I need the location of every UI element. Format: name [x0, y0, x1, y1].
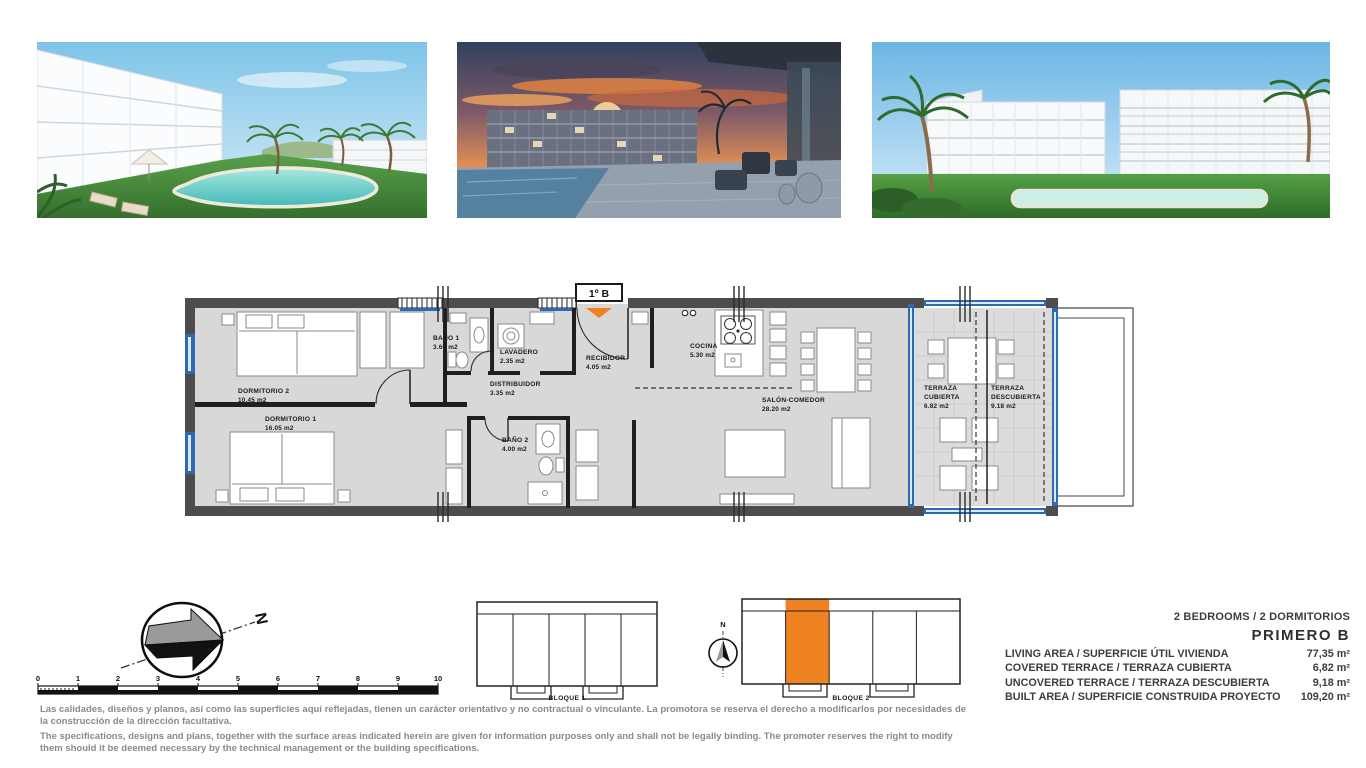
room-label-terraza-descubierta: TERRAZA	[991, 385, 1024, 392]
photo-pool-garden	[37, 42, 427, 218]
room-label-lavadero: LAVADERO	[500, 349, 538, 356]
room-area-salon-comedor: 28.20 m2	[762, 406, 791, 413]
summary-panel: 2 BEDROOMS / 2 DORMITORIOS PRIMERO B LIV…	[1005, 611, 1350, 704]
floor-plan-drawing: 1º B DORMITORIO 2 10.45 m2 DORMITORIO 1 …	[180, 282, 1140, 522]
room-label-terraza-cubierta: TERRAZA	[924, 385, 957, 392]
summary-row-uncovered-terrace: UNCOVERED TERRACE / TERRAZA DESCUBIERTA …	[1005, 676, 1350, 690]
summary-label: LIVING AREA / SUPERFICIE ÚTIL VIVIENDA	[1005, 647, 1228, 661]
room-area-bano-2: 4.00 m2	[502, 446, 527, 453]
room-label-cocina: COCINA	[690, 343, 718, 350]
photo-pool-garden-image	[37, 42, 427, 218]
compass-north-label: N	[251, 611, 270, 626]
svg-text:7: 7	[316, 674, 320, 683]
room-area-dormitorio-2: 10.45 m2	[238, 397, 267, 404]
svg-text:3: 3	[156, 674, 160, 683]
highlighted-unit	[786, 599, 830, 684]
room-area-terraza-cubierta: 6.82 m2	[924, 403, 949, 410]
summary-label: UNCOVERED TERRACE / TERRAZA DESCUBIERTA	[1005, 676, 1270, 690]
room-area-bano-1: 3.60 m2	[433, 344, 458, 351]
bloque-2-label: BLOQUE 2	[832, 695, 869, 702]
brochure-page: 1º B DORMITORIO 2 10.45 m2 DORMITORIO 1 …	[0, 0, 1366, 768]
room-label-bano-2: BAÑO 2	[502, 435, 528, 444]
photo-building-lawn-image	[872, 42, 1330, 218]
scale-bar: 0 1 2 3 4 5 6 7 8 9 10	[30, 672, 450, 700]
photo-sunset-terrace	[457, 42, 841, 218]
room-area-dormitorio-1: 16.05 m2	[265, 425, 294, 432]
disclaimer-english: The specifications, designs and plans, t…	[40, 731, 970, 756]
room-area-lavadero: 2.35 m2	[500, 358, 525, 365]
summary-label: COVERED TERRACE / TERRAZA CUBIERTA	[1005, 661, 1232, 675]
room-label-dormitorio-2: DORMITORIO 2	[238, 388, 289, 395]
block-compass-north-label: N	[720, 620, 725, 629]
block-compass-icon: N	[709, 620, 737, 677]
summary-row-living-area: LIVING AREA / SUPERFICIE ÚTIL VIVIENDA 7…	[1005, 647, 1350, 661]
summary-row-built-area: BUILT AREA / SUPERFICIE CONSTRUIDA PROYE…	[1005, 690, 1350, 704]
svg-text:DESCUBIERTA: DESCUBIERTA	[991, 394, 1041, 401]
block-key-plans-drawing: BLOQUE 1 N BLOQUE 2	[470, 596, 970, 704]
compass: N	[105, 596, 280, 684]
disclaimer-spanish: Las calidades, diseños y planos, así com…	[40, 704, 970, 729]
scale-bar-drawing: 0 1 2 3 4 5 6 7 8 9 10	[30, 672, 450, 700]
svg-text:1: 1	[76, 674, 80, 683]
room-label-distribuidor: DISTRIBUIDOR	[490, 381, 541, 388]
unit-name: PRIMERO B	[1005, 627, 1350, 644]
room-label-recibidor: RECIBIDOR	[586, 355, 625, 362]
compass-icon: N	[105, 596, 280, 684]
svg-text:CUBIERTA: CUBIERTA	[924, 394, 960, 401]
photo-building-lawn	[872, 42, 1330, 218]
svg-text:6: 6	[276, 674, 280, 683]
summary-value: 6,82 m²	[1303, 661, 1350, 675]
bloque-2-plan	[742, 599, 960, 697]
svg-text:0: 0	[36, 674, 40, 683]
photo-sunset-terrace-image	[457, 42, 841, 218]
svg-text:9: 9	[396, 674, 400, 683]
summary-value: 9,18 m²	[1303, 676, 1350, 690]
unit-label-text: 1º B	[589, 288, 610, 300]
doorbell-icon	[690, 310, 696, 316]
block-key-plans: BLOQUE 1 N BLOQUE 2	[470, 596, 970, 704]
bedrooms-line: 2 BEDROOMS / 2 DORMITORIOS	[1005, 611, 1350, 623]
room-area-terraza-descubierta: 9.18 m2	[991, 403, 1016, 410]
disclaimer: Las calidades, diseños y planos, así com…	[40, 704, 970, 757]
summary-row-covered-terrace: COVERED TERRACE / TERRAZA CUBIERTA 6,82 …	[1005, 661, 1350, 675]
svg-text:5: 5	[236, 674, 240, 683]
open-deck	[1058, 308, 1133, 506]
doorbell-icon	[682, 310, 688, 316]
room-area-recibidor: 4.05 m2	[586, 364, 611, 371]
bloque-1-plan	[477, 602, 657, 699]
room-label-salon-comedor: SALÓN-COMEDOR	[762, 395, 825, 404]
bloque-1-label: BLOQUE 1	[548, 695, 585, 702]
svg-text:10: 10	[434, 674, 442, 683]
room-label-dormitorio-1: DORMITORIO 1	[265, 416, 316, 423]
floor-plan: 1º B DORMITORIO 2 10.45 m2 DORMITORIO 1 …	[180, 282, 1140, 522]
svg-text:2: 2	[116, 674, 120, 683]
svg-text:8: 8	[356, 674, 360, 683]
summary-value: 77,35 m²	[1297, 647, 1350, 661]
room-area-cocina: 5.30 m2	[690, 352, 715, 359]
summary-value: 109,20 m²	[1291, 690, 1350, 704]
summary-label: BUILT AREA / SUPERFICIE CONSTRUIDA PROYE…	[1005, 690, 1281, 704]
room-area-distribuidor: 3.35 m2	[490, 390, 515, 397]
room-label-bano-1: BAÑO 1	[433, 333, 459, 342]
svg-text:4: 4	[196, 674, 201, 683]
